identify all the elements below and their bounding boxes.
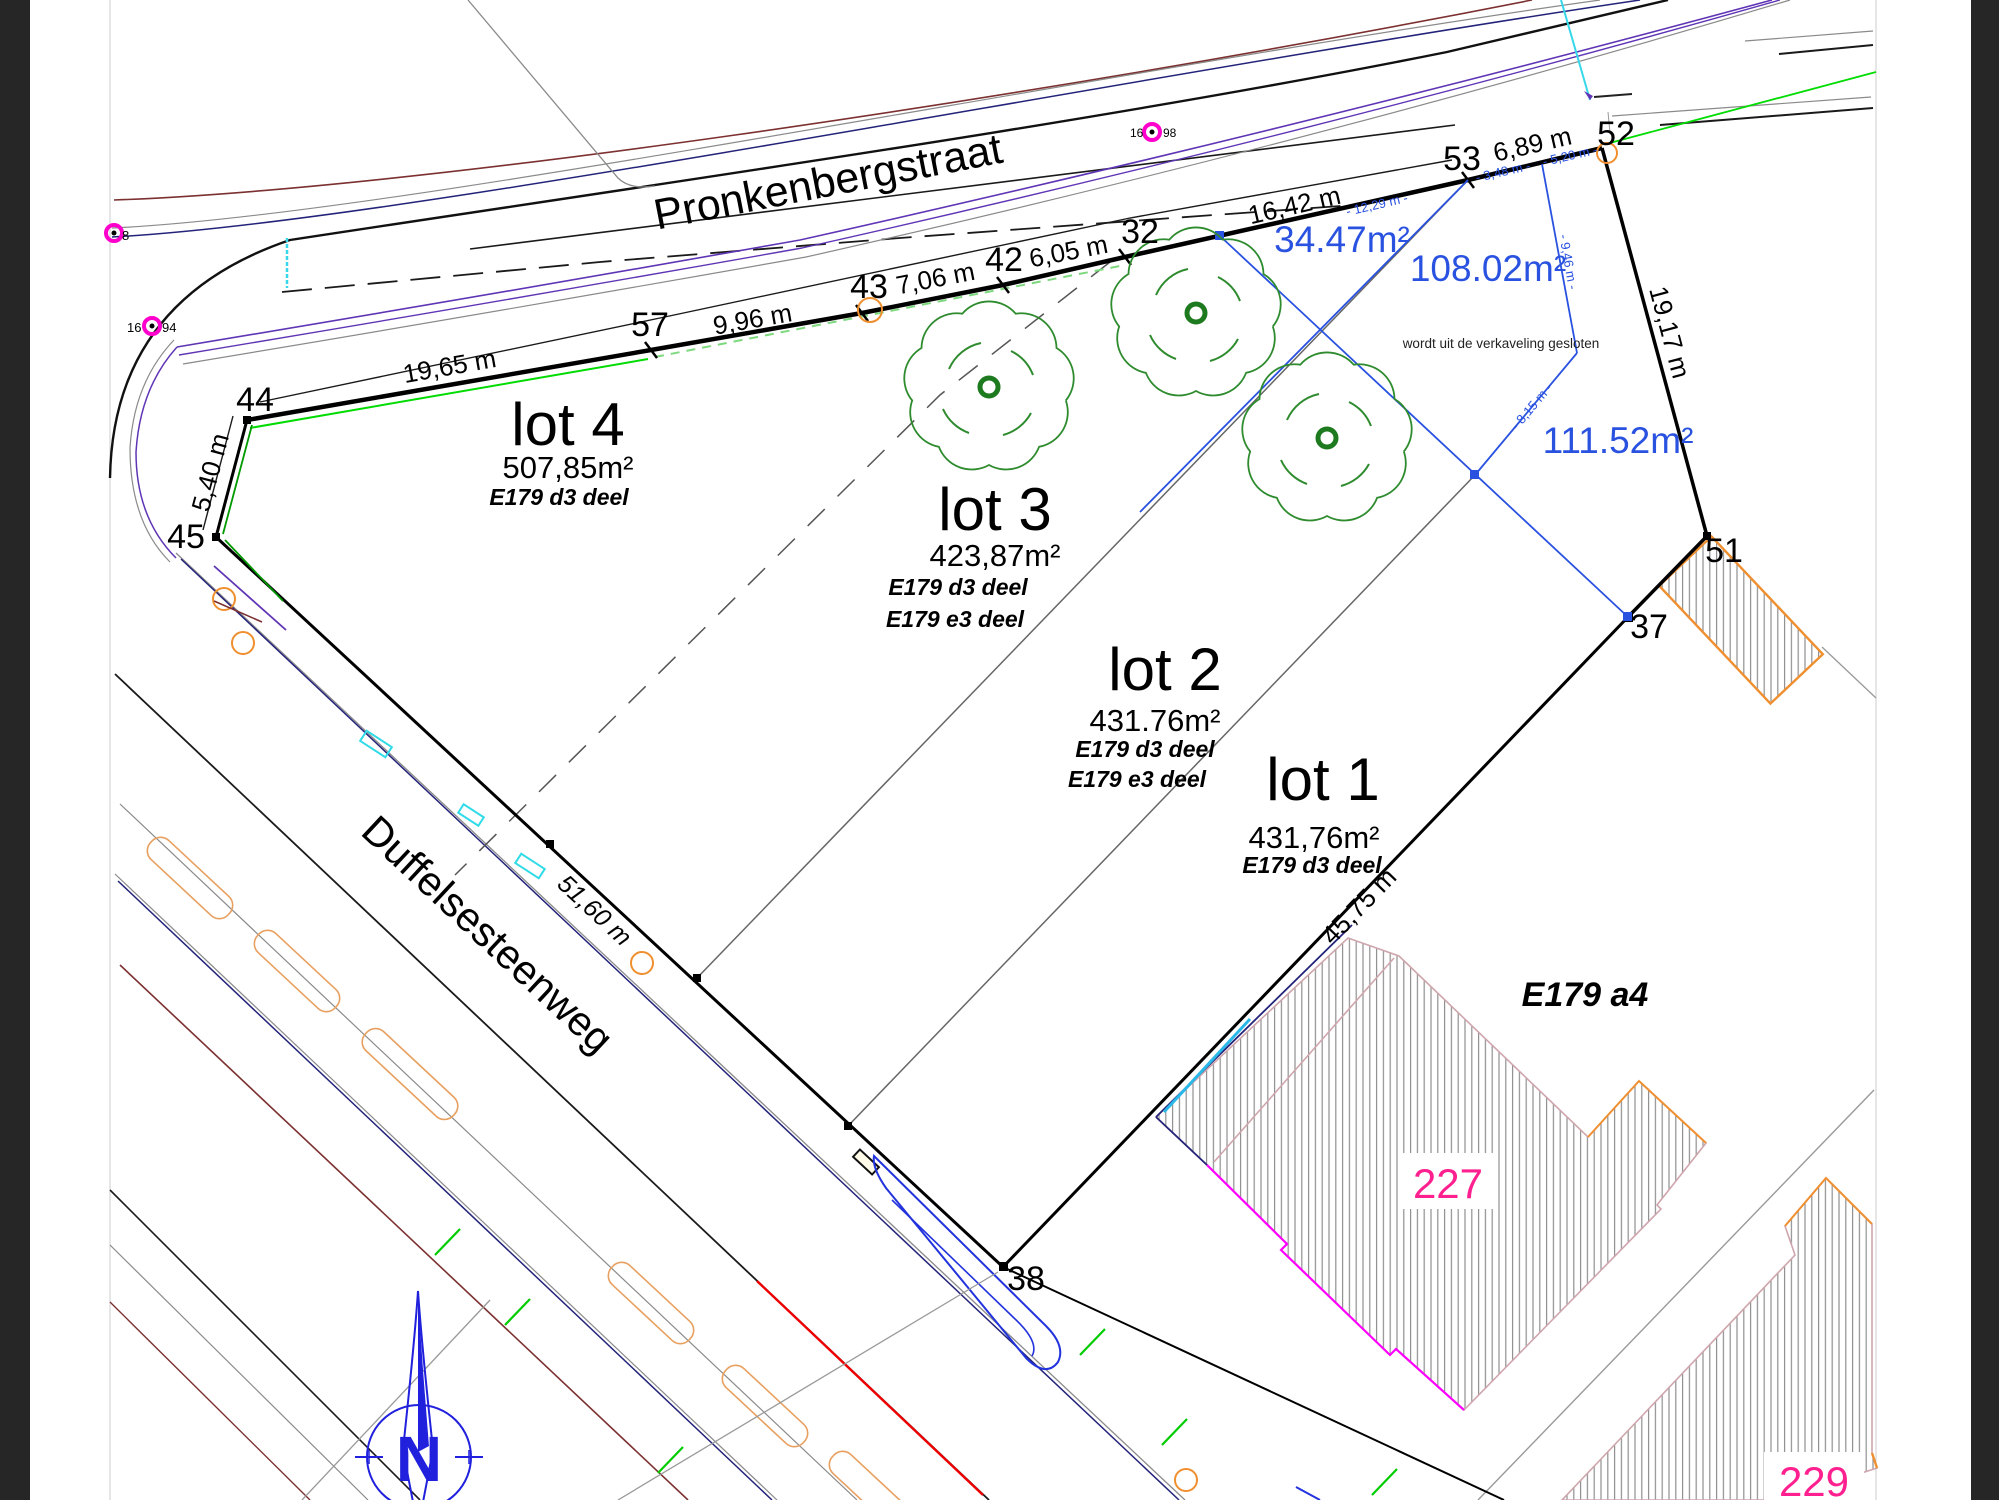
svg-text:431.76m²: 431.76m² (1090, 703, 1221, 738)
svg-text:44: 44 (236, 381, 274, 419)
svg-text:lot 3: lot 3 (938, 476, 1051, 543)
svg-text:51: 51 (1705, 532, 1743, 570)
svg-text:42: 42 (985, 241, 1023, 279)
svg-text:E179 a4: E179 a4 (1522, 976, 1649, 1014)
svg-text:108.02m²: 108.02m² (1410, 248, 1566, 289)
svg-text:43: 43 (850, 268, 888, 306)
svg-text:38: 38 (1007, 1260, 1045, 1298)
svg-text:E179 d3 deel: E179 d3 deel (1075, 736, 1215, 762)
svg-text:229: 229 (1779, 1458, 1849, 1500)
svg-text:52: 52 (1597, 115, 1635, 153)
svg-text:lot 4: lot 4 (511, 391, 624, 458)
svg-text:E179 e3 deel: E179 e3 deel (886, 606, 1025, 632)
svg-text:37: 37 (1630, 608, 1668, 646)
svg-text:32: 32 (1121, 213, 1159, 251)
svg-text:45: 45 (167, 518, 205, 556)
svg-text:423,87m²: 423,87m² (930, 538, 1061, 573)
svg-text:507,85m²: 507,85m² (503, 450, 634, 485)
svg-text:57: 57 (631, 306, 669, 344)
svg-text:16: 16 (1130, 126, 1144, 140)
svg-text:wordt uit de verkaveling geslo: wordt uit de verkaveling gesloten (1402, 336, 1600, 351)
svg-text:227: 227 (1413, 1160, 1483, 1207)
svg-text:98: 98 (1163, 126, 1177, 140)
svg-text:E179 d3 deel: E179 d3 deel (489, 484, 629, 510)
svg-text:53: 53 (1443, 140, 1481, 178)
svg-text:16: 16 (127, 320, 141, 335)
svg-text:lot 2: lot 2 (1108, 636, 1221, 703)
svg-text:34.47m²: 34.47m² (1274, 219, 1410, 260)
svg-text:8: 8 (122, 228, 129, 243)
svg-text:431,76m²: 431,76m² (1249, 820, 1380, 855)
svg-text:E179 d3 deel: E179 d3 deel (888, 574, 1028, 600)
svg-text:N: N (396, 1423, 442, 1495)
svg-text:E179 d3 deel: E179 d3 deel (1242, 852, 1382, 878)
svg-text:111.52m²: 111.52m² (1543, 420, 1694, 461)
svg-text:94: 94 (162, 320, 176, 335)
svg-text:E179 e3 deel: E179 e3 deel (1068, 766, 1207, 792)
svg-text:lot 1: lot 1 (1266, 746, 1379, 813)
